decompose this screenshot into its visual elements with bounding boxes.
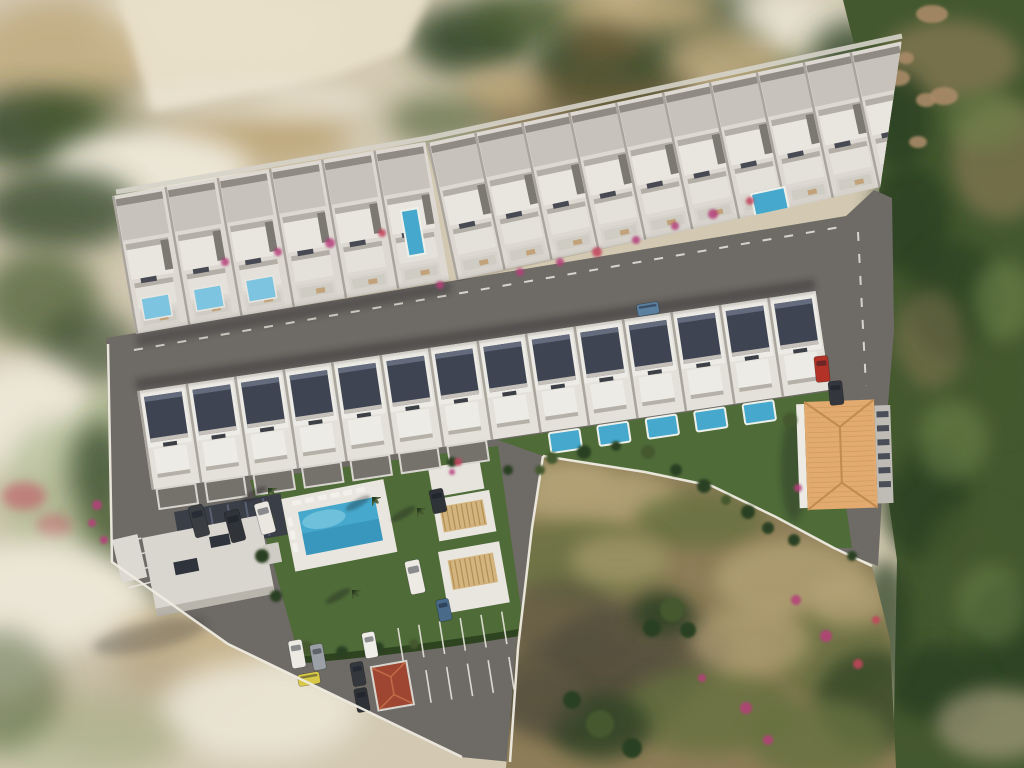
site-plan-svg: Aerial 3D render of a hillside residenti… xyxy=(0,0,1024,768)
tree xyxy=(270,590,282,602)
tree xyxy=(503,465,513,475)
tree xyxy=(546,452,558,464)
tree xyxy=(622,738,642,758)
private-pool xyxy=(646,414,680,438)
bougainvillea xyxy=(449,469,455,475)
bougainvillea xyxy=(708,209,718,219)
plunge-pool xyxy=(141,294,172,320)
tree xyxy=(783,413,797,427)
bougainvillea xyxy=(516,268,524,276)
tree xyxy=(670,464,682,476)
rock xyxy=(909,136,927,148)
tree xyxy=(762,522,774,534)
bougainvillea xyxy=(221,258,229,266)
terrace-lounger xyxy=(878,467,890,473)
plunge-pool xyxy=(245,276,276,302)
bougainvillea xyxy=(794,484,802,492)
bougainvillea xyxy=(436,281,444,289)
villa-yard xyxy=(399,448,441,473)
villa-yard xyxy=(157,483,199,508)
bougainvillea xyxy=(763,735,773,745)
bougainvillea xyxy=(853,659,863,669)
bougainvillea xyxy=(100,536,108,544)
bougainvillea xyxy=(88,519,96,527)
rock xyxy=(898,52,914,64)
sand-streak xyxy=(130,78,370,122)
tree xyxy=(741,505,755,519)
dark-car-entrance xyxy=(828,380,844,405)
bougainvillea xyxy=(378,229,386,237)
tree xyxy=(409,639,419,649)
tree xyxy=(721,495,731,505)
bougainvillea xyxy=(791,595,801,605)
villa-yard xyxy=(205,476,247,501)
tree xyxy=(641,445,655,459)
private-pool xyxy=(742,400,776,424)
bougainvillea xyxy=(274,248,282,256)
tree xyxy=(680,622,696,638)
plunge-pool xyxy=(193,285,224,311)
tree xyxy=(660,598,684,622)
red-car-body xyxy=(814,355,831,382)
tree xyxy=(586,710,614,738)
private-pool xyxy=(694,407,728,431)
terracotta-kiosk xyxy=(370,660,415,712)
bougainvillea xyxy=(671,222,679,230)
bougainvillea xyxy=(698,674,706,682)
villa-yard xyxy=(350,455,392,480)
terrace-lounger xyxy=(877,425,889,431)
terrain-blob xyxy=(564,24,644,68)
bougainvillea xyxy=(820,630,832,642)
bougainvillea xyxy=(872,616,880,624)
red-car-windshield xyxy=(816,360,826,366)
orange-roof-building xyxy=(796,399,894,510)
hillside-blob xyxy=(916,400,988,480)
aerial-site-render: Aerial 3D render of a hillside residenti… xyxy=(0,0,1024,768)
terrace-lounger xyxy=(878,453,890,459)
tree xyxy=(577,445,591,459)
bougainvillea xyxy=(592,247,602,257)
rock xyxy=(930,87,958,105)
tree xyxy=(847,551,857,561)
tree xyxy=(255,549,269,563)
bougainvillea xyxy=(325,238,335,248)
terrain-blob xyxy=(2,482,46,510)
terrace-lounger xyxy=(876,411,888,417)
tree xyxy=(611,441,621,451)
rock xyxy=(916,5,948,23)
lot-blob xyxy=(690,604,810,676)
bougainvillea xyxy=(92,500,102,510)
tree xyxy=(643,619,661,637)
bougainvillea xyxy=(740,702,752,714)
terrace-lounger xyxy=(879,481,891,487)
bougainvillea xyxy=(632,236,640,244)
tree xyxy=(535,465,545,475)
terrain-blob xyxy=(36,514,72,538)
tree xyxy=(336,646,348,658)
red-car xyxy=(814,355,831,382)
tree xyxy=(788,534,800,546)
bougainvillea xyxy=(556,258,564,266)
tree xyxy=(563,691,581,709)
dark-car-entrance-body xyxy=(828,380,844,405)
private-pool xyxy=(549,429,583,453)
villa-yard xyxy=(302,462,344,487)
terrace-lounger xyxy=(877,439,889,445)
bougainvillea xyxy=(454,458,462,466)
bougainvillea xyxy=(746,197,754,205)
tree xyxy=(697,479,711,493)
lot-blob xyxy=(570,534,670,586)
